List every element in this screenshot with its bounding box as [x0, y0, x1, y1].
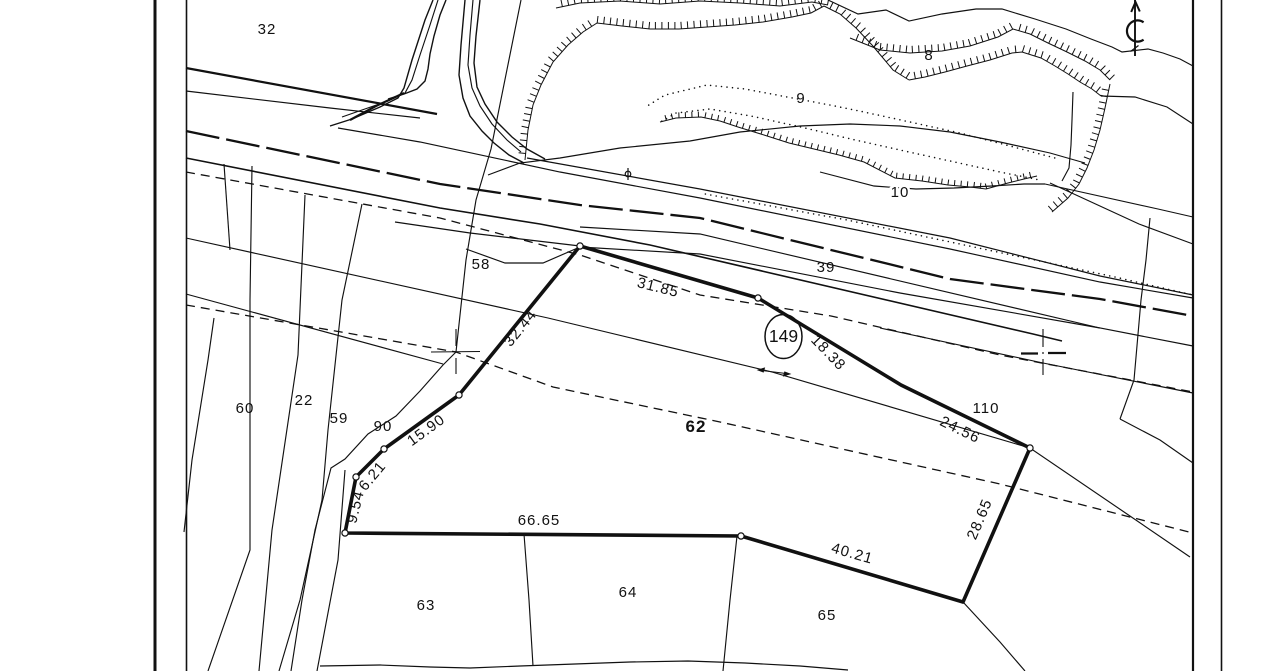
svg-text:62: 62	[686, 417, 707, 436]
svg-text:63: 63	[417, 597, 436, 614]
svg-text:9: 9	[796, 90, 805, 107]
svg-text:10: 10	[891, 184, 910, 201]
svg-text:149: 149	[769, 326, 798, 346]
svg-text:32: 32	[258, 21, 277, 38]
svg-text:65: 65	[818, 607, 837, 624]
svg-text:64: 64	[619, 584, 638, 601]
svg-text:8: 8	[924, 47, 933, 64]
svg-text:39: 39	[817, 259, 836, 276]
svg-text:58: 58	[472, 256, 491, 273]
svg-text:66.65: 66.65	[518, 512, 561, 529]
svg-text:90: 90	[374, 418, 393, 435]
svg-text:59: 59	[330, 410, 349, 427]
svg-text:60: 60	[236, 400, 255, 417]
svg-text:110: 110	[973, 400, 1000, 417]
svg-text:22: 22	[295, 392, 314, 409]
